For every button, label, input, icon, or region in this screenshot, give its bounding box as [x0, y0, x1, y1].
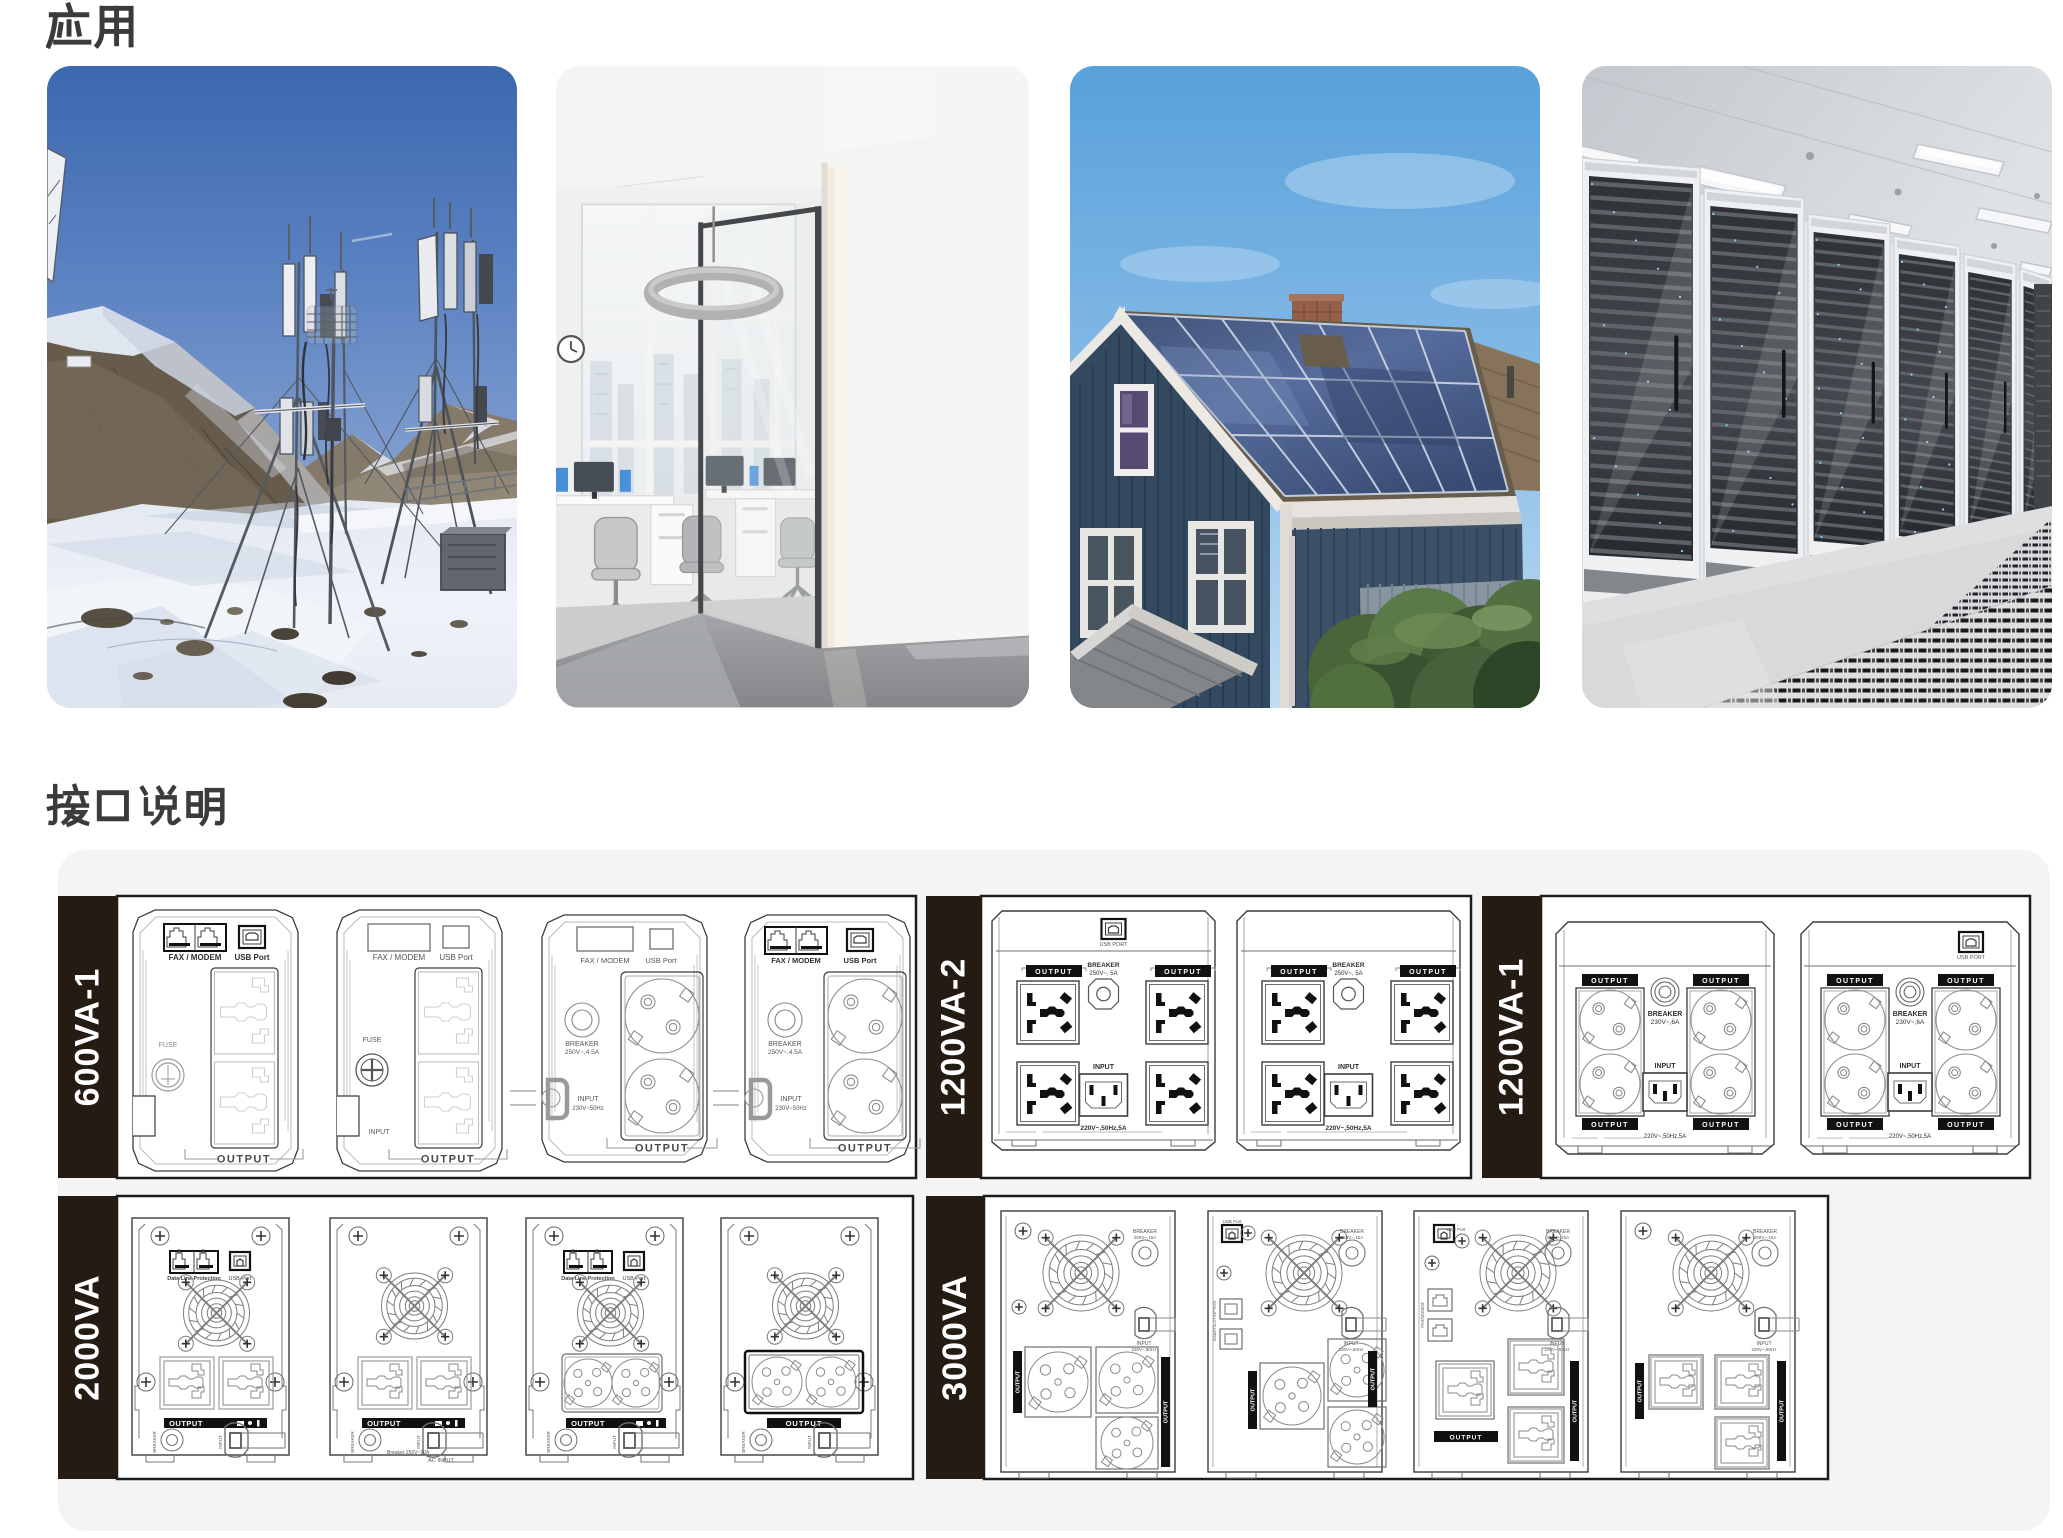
svg-text:INPUT: INPUT	[781, 1096, 803, 1103]
svg-text:OUTPUT: OUTPUT	[1591, 1122, 1629, 1129]
svg-text:OUTPUT: OUTPUT	[786, 1419, 823, 1428]
svg-text:USB Port: USB Port	[1447, 1227, 1467, 1232]
svg-text:220V~,50Hz,5A: 220V~,50Hz,5A	[1080, 1125, 1126, 1132]
svg-text:OUTPUT: OUTPUT	[571, 1419, 605, 1428]
svg-text:1200VA-1: 1200VA-1	[1493, 958, 1531, 1117]
svg-text:FAX / MODEM: FAX / MODEM	[373, 953, 426, 962]
svg-text:OUTPUT: OUTPUT	[1035, 969, 1073, 976]
svg-text:BREAKER: BREAKER	[1648, 1011, 1683, 1018]
svg-text:OUTPUT: OUTPUT	[1164, 1400, 1170, 1423]
svg-text:FAX/MODEM: FAX/MODEM	[1420, 1302, 1425, 1328]
svg-text:OUTPUT: OUTPUT	[1371, 1367, 1377, 1390]
svg-text:2000VA: 2000VA	[69, 1274, 107, 1400]
svg-text:OUTPUT: OUTPUT	[1836, 978, 1874, 985]
svg-text:250V~,15A: 250V~,15A	[1134, 1235, 1156, 1240]
svg-text:BREAKER: BREAKER	[741, 1431, 746, 1453]
svg-text:FUSE: FUSE	[363, 1037, 382, 1044]
svg-text:OUTPUT: OUTPUT	[1450, 1435, 1483, 1442]
svg-text:250V~,4.5A: 250V~,4.5A	[565, 1049, 600, 1056]
svg-text:230V~50Hz: 230V~50Hz	[775, 1106, 807, 1112]
svg-text:OUTPUT: OUTPUT	[1251, 1388, 1257, 1411]
svg-text:OUTPUT: OUTPUT	[1409, 969, 1447, 976]
svg-text:OUTPUT: OUTPUT	[1947, 1122, 1985, 1129]
svg-text:OUTPUT: OUTPUT	[1702, 978, 1740, 985]
svg-text:OUTPUT: OUTPUT	[1280, 969, 1318, 976]
svg-text:SMARTSLOT/OPTION: SMARTSLOT/OPTION	[1212, 1300, 1217, 1341]
svg-text:BREAKER: BREAKER	[768, 1041, 801, 1048]
svg-text:BREAKER: BREAKER	[546, 1431, 551, 1453]
svg-text:600VA-1: 600VA-1	[69, 968, 107, 1107]
svg-text:FAX / MODEM: FAX / MODEM	[771, 956, 821, 965]
svg-text:FAX / MODEM: FAX / MODEM	[580, 956, 629, 965]
svg-text:230V~,6A: 230V~,6A	[1896, 1019, 1925, 1026]
svg-text:USB Port: USB Port	[439, 953, 473, 962]
svg-text:250V~, 5A: 250V~, 5A	[1089, 971, 1117, 977]
svg-text:BREAKER: BREAKER	[152, 1431, 157, 1453]
svg-text:OUTPUT: OUTPUT	[635, 1143, 689, 1155]
svg-text:250V~, 5A: 250V~, 5A	[1334, 971, 1362, 977]
svg-text:OUTPUT: OUTPUT	[1780, 1399, 1786, 1422]
svg-text:230V~50Hz: 230V~50Hz	[572, 1106, 604, 1112]
svg-text:OUTPUT: OUTPUT	[421, 1154, 475, 1166]
svg-text:USB Port: USB Port	[1223, 1219, 1243, 1224]
svg-text:USB PORT: USB PORT	[1957, 955, 1986, 961]
svg-text:INPUT: INPUT	[1900, 1063, 1922, 1070]
svg-text:250V~,15A: 250V~,15A	[1547, 1235, 1569, 1240]
svg-text:OUTPUT: OUTPUT	[1573, 1399, 1579, 1422]
svg-text:250V~,4.5A: 250V~,4.5A	[768, 1049, 803, 1056]
svg-text:OUTPUT: OUTPUT	[1638, 1379, 1644, 1402]
svg-text:230V~,6A: 230V~,6A	[1651, 1019, 1680, 1026]
svg-text:OUTPUT: OUTPUT	[1016, 1370, 1022, 1393]
svg-text:INPUT: INPUT	[612, 1435, 617, 1449]
svg-text:INPUT: INPUT	[416, 1435, 421, 1449]
svg-text:OUTPUT: OUTPUT	[1164, 969, 1202, 976]
svg-text:INPUT: INPUT	[369, 1129, 391, 1136]
svg-text:Data Line Protection: Data Line Protection	[561, 1276, 615, 1282]
svg-text:INPUT: INPUT	[578, 1096, 600, 1103]
svg-text:OUTPUT: OUTPUT	[217, 1154, 271, 1166]
svg-text:3000VA: 3000VA	[936, 1274, 974, 1400]
svg-text:220V~,50Hz,5A: 220V~,50Hz,5A	[1889, 1134, 1931, 1140]
svg-text:BREAKER: BREAKER	[565, 1041, 598, 1048]
svg-text:INPUT: INPUT	[807, 1435, 812, 1449]
svg-text:OUTPUT: OUTPUT	[367, 1419, 401, 1428]
svg-text:OUTPUT: OUTPUT	[1836, 1122, 1874, 1129]
svg-text:USB Port: USB Port	[645, 956, 677, 965]
svg-text:220V~,50Hz: 220V~,50Hz	[1132, 1347, 1158, 1352]
svg-text:BREAKER: BREAKER	[1332, 962, 1364, 969]
svg-text:FUSE: FUSE	[159, 1042, 178, 1049]
svg-text:250V~,15A: 250V~,15A	[1341, 1235, 1363, 1240]
svg-text:BREAKER: BREAKER	[1893, 1011, 1928, 1018]
svg-text:BREAKER: BREAKER	[350, 1431, 355, 1453]
svg-text:USB Port: USB Port	[234, 953, 269, 962]
svg-text:USB Port: USB Port	[844, 956, 877, 965]
svg-text:USB PORT: USB PORT	[1099, 942, 1128, 948]
svg-text:BREAKER: BREAKER	[1087, 962, 1119, 969]
svg-text:Data Line Protection: Data Line Protection	[167, 1276, 221, 1282]
svg-text:220V~,50Hz,5A: 220V~,50Hz,5A	[1644, 1134, 1686, 1140]
svg-text:INPUT: INPUT	[1655, 1063, 1677, 1070]
svg-text:OUTPUT: OUTPUT	[1591, 978, 1629, 985]
svg-text:OUTPUT: OUTPUT	[169, 1419, 203, 1428]
svg-text:AC INPUT: AC INPUT	[428, 1458, 454, 1464]
svg-text:OUTPUT: OUTPUT	[1702, 1122, 1740, 1129]
svg-text:220V~,50Hz,5A: 220V~,50Hz,5A	[1325, 1125, 1371, 1132]
svg-text:INPUT: INPUT	[1093, 1064, 1115, 1071]
svg-text:INPUT: INPUT	[1338, 1064, 1360, 1071]
svg-text:OUTPUT: OUTPUT	[1947, 978, 1985, 985]
svg-text:FAX / MODEM: FAX / MODEM	[169, 953, 222, 962]
svg-text:1200VA-2: 1200VA-2	[935, 958, 973, 1117]
svg-text:220V~,50Hz: 220V~,50Hz	[1752, 1347, 1778, 1352]
svg-text:250V~,15A: 250V~,15A	[1754, 1235, 1776, 1240]
svg-text:INPUT: INPUT	[218, 1435, 223, 1449]
svg-text:OUTPUT: OUTPUT	[838, 1143, 892, 1155]
